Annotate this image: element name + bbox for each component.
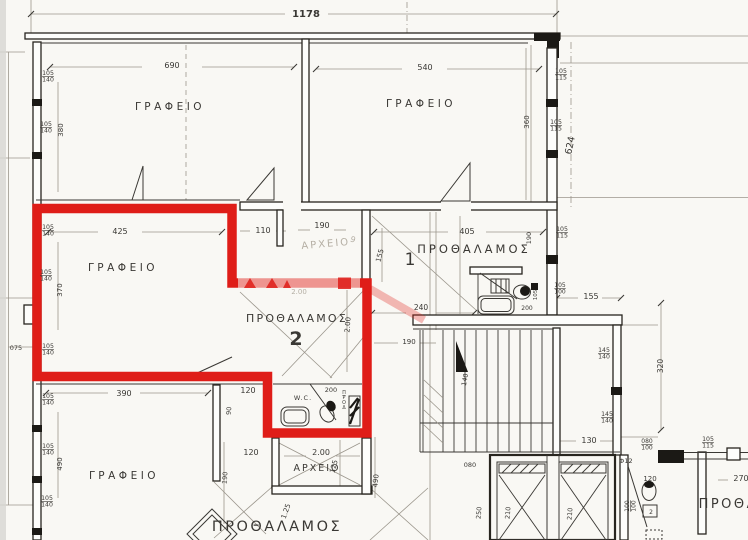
label-room-wc-unit2: W.C. [294,394,312,402]
wall-top-outer [25,33,560,39]
label-dim-270: 270 [733,474,748,483]
wall-office-bottom-right [213,385,220,481]
label-dim-90: 90 [225,406,234,415]
door-swings [132,163,647,527]
label-room-prothalamos-2: ΠΡΟΘΑΛΑΜΟΣ [246,312,348,325]
label-dim-380: 380 [57,123,65,136]
label-win-105-140-a: 105140 [42,70,54,84]
wall-archive2-right [362,438,371,494]
label-dim-390: 390 [116,389,131,398]
pilaster [24,305,33,324]
label-room-archive-faded: ΑΡΧΕΙΟ [301,237,351,252]
label-dim-110: 110 [255,226,270,235]
label-unit-2-number: 2 [289,328,302,350]
label-dim-125-b: 1.25 [280,503,293,520]
label-dim-190-bath: 190 [525,232,533,244]
label-dim-490: 490 [56,457,64,470]
label-win-145-140-b: 145140 [601,411,613,425]
label-win-105-115-c: 105115 [556,226,568,240]
label-dim-140-stairs: 140 [460,373,470,387]
label-dim-370: 370 [56,283,64,296]
scan-edge-left [0,0,6,540]
label-dim-210-lift1: 210 [503,506,512,519]
label-dim-155-rot: 155 [374,248,385,263]
wall-right-outer [547,48,557,315]
label-dim-200-wc: 200 [325,386,337,394]
label-win-105-140-h: 105140 [41,495,53,509]
wall-jamb [277,210,283,246]
label-dim-490-b: 490 [371,474,380,488]
label-dim-250: 250 [474,506,483,519]
wall-corner-step [534,33,560,41]
label-win-105-140-e: 105140 [42,343,54,357]
wall-bath1-top [470,267,522,274]
label-room-prothalamos-1: ΠΡΟΘΑΛΑΜΟΣ [417,242,531,256]
label-room-archive-bottom: ΑΡΧΕΙΟ [293,463,340,474]
label-win-105-115-a: 105115 [555,68,567,82]
label-dim-120-wc3: 120 [643,475,656,483]
label-dim-360: 360 [523,115,531,128]
wall-archive2-left [272,438,279,488]
stairs [413,329,620,452]
label-dim-155: 155 [583,292,598,301]
label-dim-200-faded: 2.00 [291,288,307,296]
label-dim-120-b: 120 [243,448,258,457]
label-dim-240: 240 [414,303,429,312]
label-win-105-115-d: 105115 [702,436,714,450]
label-room-office-unit2: ΓΡΑΦΕΙΟ [88,262,158,274]
label-dim-210-lift2: 210 [565,507,574,520]
wall-stair-right [553,328,560,455]
label-dim-phi12: Φ12 [619,457,632,465]
label-room-office-bottom: ΓΡΑΦΕΙΟ [89,470,159,482]
stair-direction-arrow [456,341,468,372]
label-win-105-140-c: 105140 [42,224,54,238]
elevator-shafts [490,455,615,540]
label-dim-425: 425 [112,227,127,236]
label-room-prothalamos-right: ΠΡΟΘΑΛ [699,497,748,512]
label-win-105-100: 105100 [554,282,566,295]
wall-archive-right [362,210,370,284]
label-unit-1-number: 1 [405,250,416,270]
wall-right-block [727,448,740,460]
label-win-105-140-f: 105140 [42,393,54,407]
wall-wc3-right [698,452,706,534]
label-dim-200-bath1: 200 [521,305,533,312]
plan-canvas: 1178690540ΓΡΑΦΕΙΟΓΡΑΦΕΙΟ1051401051403801… [0,0,748,540]
wall-divider-top-rooms [302,39,309,206]
label-dim-105-bath1: 105 [533,289,539,300]
label-dim-540: 540 [417,63,432,72]
wall-ledge [413,315,622,325]
label-room-office-top-left: ΓΡΑΦΕΙΟ [135,101,205,113]
label-dim-075: 075 [10,344,22,352]
label-dim-120-a: 120 [240,386,255,395]
wall-wc3-block [658,450,684,463]
label-scribble-9: 9 [349,235,357,245]
label-dim-690: 690 [164,61,179,70]
label-dim-130: 130 [581,436,596,445]
elevator-door-hatch [502,464,600,473]
label-dim-080: 080 [464,461,476,469]
label-win-145-140-a: 145140 [598,347,610,361]
label-dim-320: 320 [656,359,665,374]
label-room-office-top-right: ΓΡΑΦΕΙΟ [386,98,456,110]
label-dim-200-archive: 2.00 [312,448,330,457]
label-dim-190-rot-b: 190 [220,471,229,484]
label-win-080-100: 080100 [641,438,653,451]
label-dim-190-archive: 190 [314,221,329,230]
wall-archive2-bottom [272,486,372,494]
label-room-prothalamos-bottom: ΠΡΟΘΑΛΑΜΟΣ [212,519,342,535]
label-dim-total-width: 1178 [292,9,320,20]
labels-layer: 1178690540ΓΡΑΦΕΙΟΓΡΑΦΕΙΟ1051401051403801… [10,9,748,535]
floor-plan-svg: 1178690540ΓΡΑΦΕΙΟΓΡΑΦΕΙΟ1051401051403801… [0,0,748,540]
label-duct-text: ΠΡΟΔ [342,390,346,411]
label-dim-624: 624 [563,135,578,155]
label-dim-405: 405 [459,227,474,236]
label-fixture-2: 2 [649,509,653,516]
label-win-105-140-g: 105140 [42,443,54,457]
label-dim-200-rot: 2.00 [343,317,352,333]
label-win-105-140-b: 105140 [40,121,52,135]
label-win-105-140-d: 105140 [40,269,52,283]
label-dim-100-100: 100100 [624,500,637,512]
wall-wc3-left [620,455,628,540]
label-win-105-115-b: 105115 [550,119,562,133]
label-dim-190-ledge: 190 [402,338,415,346]
